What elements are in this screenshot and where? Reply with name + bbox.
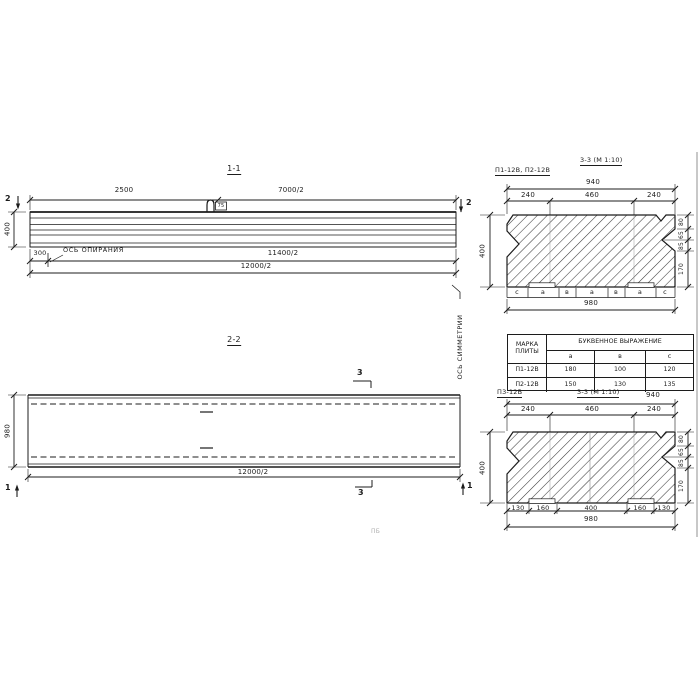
dim-label-80-a: 80 <box>679 218 685 226</box>
dim-label-160-2: 160 <box>633 505 646 512</box>
letter-a2: а <box>590 289 594 296</box>
dim-label-460-b: 460 <box>585 406 599 413</box>
dim-label-300: 300 <box>33 250 46 257</box>
dim-label-240-a2: 240 <box>647 192 661 199</box>
cut-mark-1-left <box>15 485 19 498</box>
letter-b1: в <box>565 289 569 296</box>
dim-label-65-b: 65 <box>679 447 685 455</box>
dim-label-130-2: 130 <box>657 505 670 512</box>
dim-label-2500: 2500 <box>115 187 134 194</box>
symmetry-axis-leader <box>452 285 460 299</box>
cut-label-2-right: 2 <box>466 199 472 207</box>
cut-label-3-top: 3 <box>357 369 363 377</box>
letter-a1: а <box>541 289 545 296</box>
dim-label-12000-2-s22: 12000/2 <box>238 469 268 476</box>
section-title-2-2: 2-2 <box>227 336 241 346</box>
dim-label-400-s11: 400 <box>5 222 12 236</box>
drawing-sheet: 1-1 2500 7000/2 2 2 400 300 ОСЬ ОПИРАНИЯ… <box>0 0 700 700</box>
dim-label-7000-2: 7000/2 <box>278 187 304 194</box>
dim-label-240-a1: 240 <box>521 192 535 199</box>
slab-dimension-table: МАРКА ПЛИТЫ БУКВЕННОЕ ВЫРАЖЕНИЕ а в с П1… <box>507 334 694 391</box>
dim-label-170-b: 170 <box>679 479 685 491</box>
cut-mark-2-right <box>459 199 463 213</box>
dim-label-160-1: 160 <box>536 505 549 512</box>
table-row1-b: 100 <box>595 364 646 378</box>
section-2-2-view <box>8 285 465 497</box>
loop-tag-label: 75 <box>218 204 225 209</box>
cut-mark-3-bottom <box>355 480 372 487</box>
table-row1-c: 120 <box>646 364 693 378</box>
slab-cross-section-top <box>507 215 675 287</box>
dim-label-980-top: 980 <box>584 300 598 307</box>
table-row2-c: 135 <box>646 378 693 392</box>
letter-b2: в <box>614 289 618 296</box>
cut-label-3-bottom: 3 <box>358 489 364 497</box>
dim-label-240-b1: 240 <box>521 406 535 413</box>
dim-label-940-top: 940 <box>586 179 600 186</box>
dim-label-85-b: 85 <box>679 458 685 466</box>
beam-outline <box>30 212 456 247</box>
cut-label-1-right: 1 <box>467 482 473 490</box>
section-title-3-3-bottom: 3-3 (М 1:10) <box>577 389 619 398</box>
dim-label-400-s33a: 400 <box>480 244 487 258</box>
dim-label-940-bottom: 940 <box>646 392 660 399</box>
cut-mark-1-right <box>461 483 465 496</box>
faint-print-note: ПБ <box>371 529 380 535</box>
support-axis-label: ОСЬ ОПИРАНИЯ <box>63 247 124 254</box>
dim-label-400-s33b: 400 <box>480 461 487 475</box>
dim-label-80-b: 80 <box>679 435 685 443</box>
dim-label-460-a: 460 <box>585 192 599 199</box>
table-col-c: с <box>646 351 693 364</box>
table-row1-a: 180 <box>547 364 595 378</box>
table-col-a: а <box>547 351 595 364</box>
letter-c2: с <box>663 289 667 296</box>
letter-c1: с <box>515 289 519 296</box>
symmetry-axis-label: ОСЬ СИММЕТРИИ <box>457 314 464 379</box>
dim-label-400-b: 400 <box>584 505 597 512</box>
cut-mark-2-left <box>16 196 20 210</box>
letter-a3: а <box>638 289 642 296</box>
section-title-1-1: 1-1 <box>227 165 241 175</box>
cut-label-1-left: 1 <box>5 484 11 492</box>
dim-label-980-s22: 980 <box>5 424 12 438</box>
marks-label-p1-p2: П1-12В, П2-12В <box>495 167 550 176</box>
dim-label-170-a: 170 <box>679 263 685 275</box>
table-row1-mark: П1-12В <box>508 364 547 378</box>
section-1-1-view <box>8 195 463 278</box>
dim-label-85-a: 85 <box>679 241 685 249</box>
dim-label-65-a: 65 <box>679 230 685 238</box>
dim-label-12000-2-s11: 12000/2 <box>241 263 271 270</box>
table-header-mark: МАРКА ПЛИТЫ <box>508 335 547 364</box>
section-title-3-3-top: 3-3 (М 1:10) <box>580 157 622 166</box>
cut-mark-3-top <box>353 381 371 388</box>
table-col-b: в <box>595 351 646 364</box>
lifting-loop-icon <box>207 200 214 212</box>
dim-label-240-b2: 240 <box>647 406 661 413</box>
cut-label-2-left: 2 <box>5 195 11 203</box>
table-header-expression: БУКВЕННОЕ ВЫРАЖЕНИЕ <box>547 335 693 351</box>
mark-label-p3: П3-12В <box>497 389 522 398</box>
dim-label-980-bottom: 980 <box>584 516 598 523</box>
section-3-3-top-view <box>480 184 694 314</box>
slab-cross-section-bottom <box>507 432 675 503</box>
dim-label-130-1: 130 <box>511 505 524 512</box>
dim-label-11400-2: 11400/2 <box>268 250 298 257</box>
